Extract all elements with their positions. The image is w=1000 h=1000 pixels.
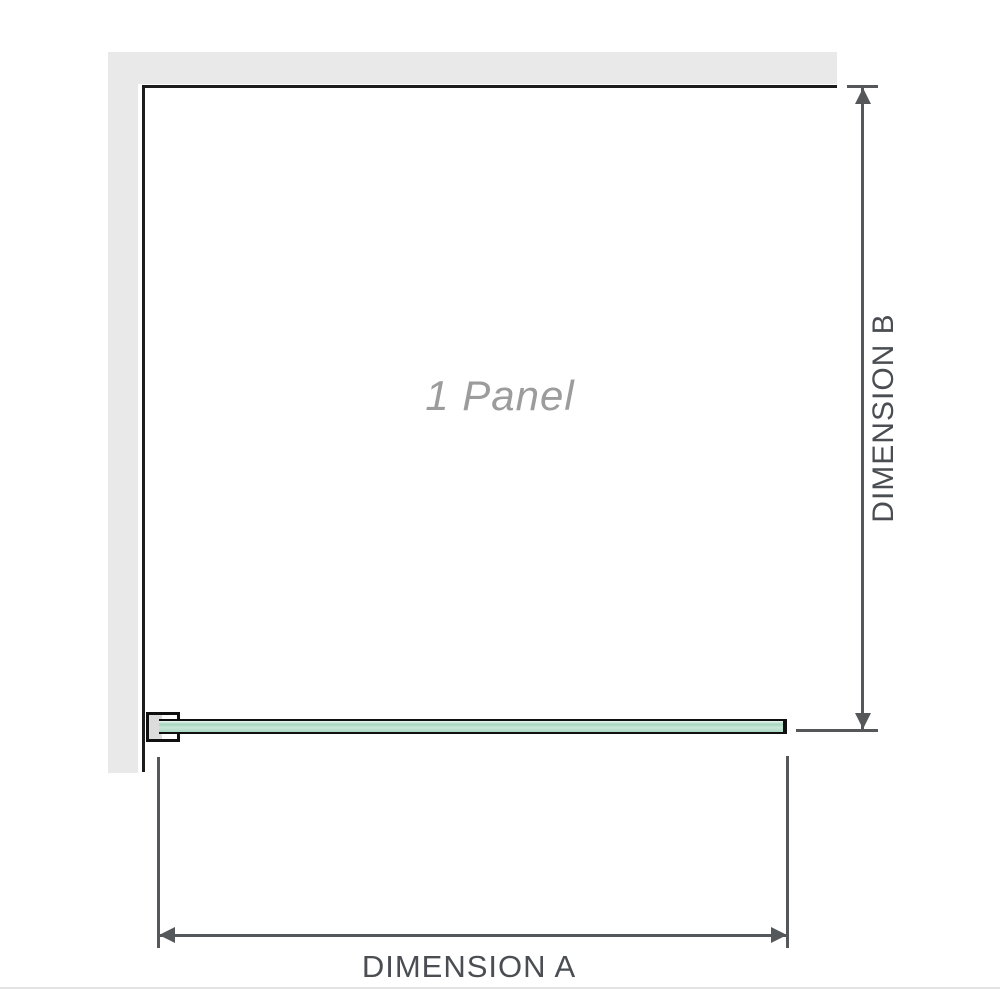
arrow-left-icon [159, 927, 175, 943]
panel-dimension-diagram: 1 Panel DIMENSION B DIMENSION A [0, 0, 1000, 1000]
wall-top-segment [108, 52, 837, 84]
arrow-right-icon [771, 927, 787, 943]
dimension-a-left-extension-line [157, 757, 160, 948]
panel-count-label: 1 Panel [340, 372, 660, 420]
arrow-up-icon [855, 88, 871, 104]
glass-panel-top-view [159, 719, 787, 734]
dimension-a-line [159, 934, 787, 937]
panel-outline [142, 85, 837, 772]
dimension-b-label: DIMENSION B [867, 268, 897, 568]
dimension-b-bottom-tick [796, 729, 878, 732]
bottom-edge-rule [0, 987, 1000, 989]
arrow-down-icon [855, 713, 871, 729]
dimension-b-line [861, 87, 864, 730]
dimension-a-label: DIMENSION A [319, 949, 619, 985]
wall-left-segment [108, 52, 138, 773]
dimension-a-right-extension-line [786, 756, 789, 948]
